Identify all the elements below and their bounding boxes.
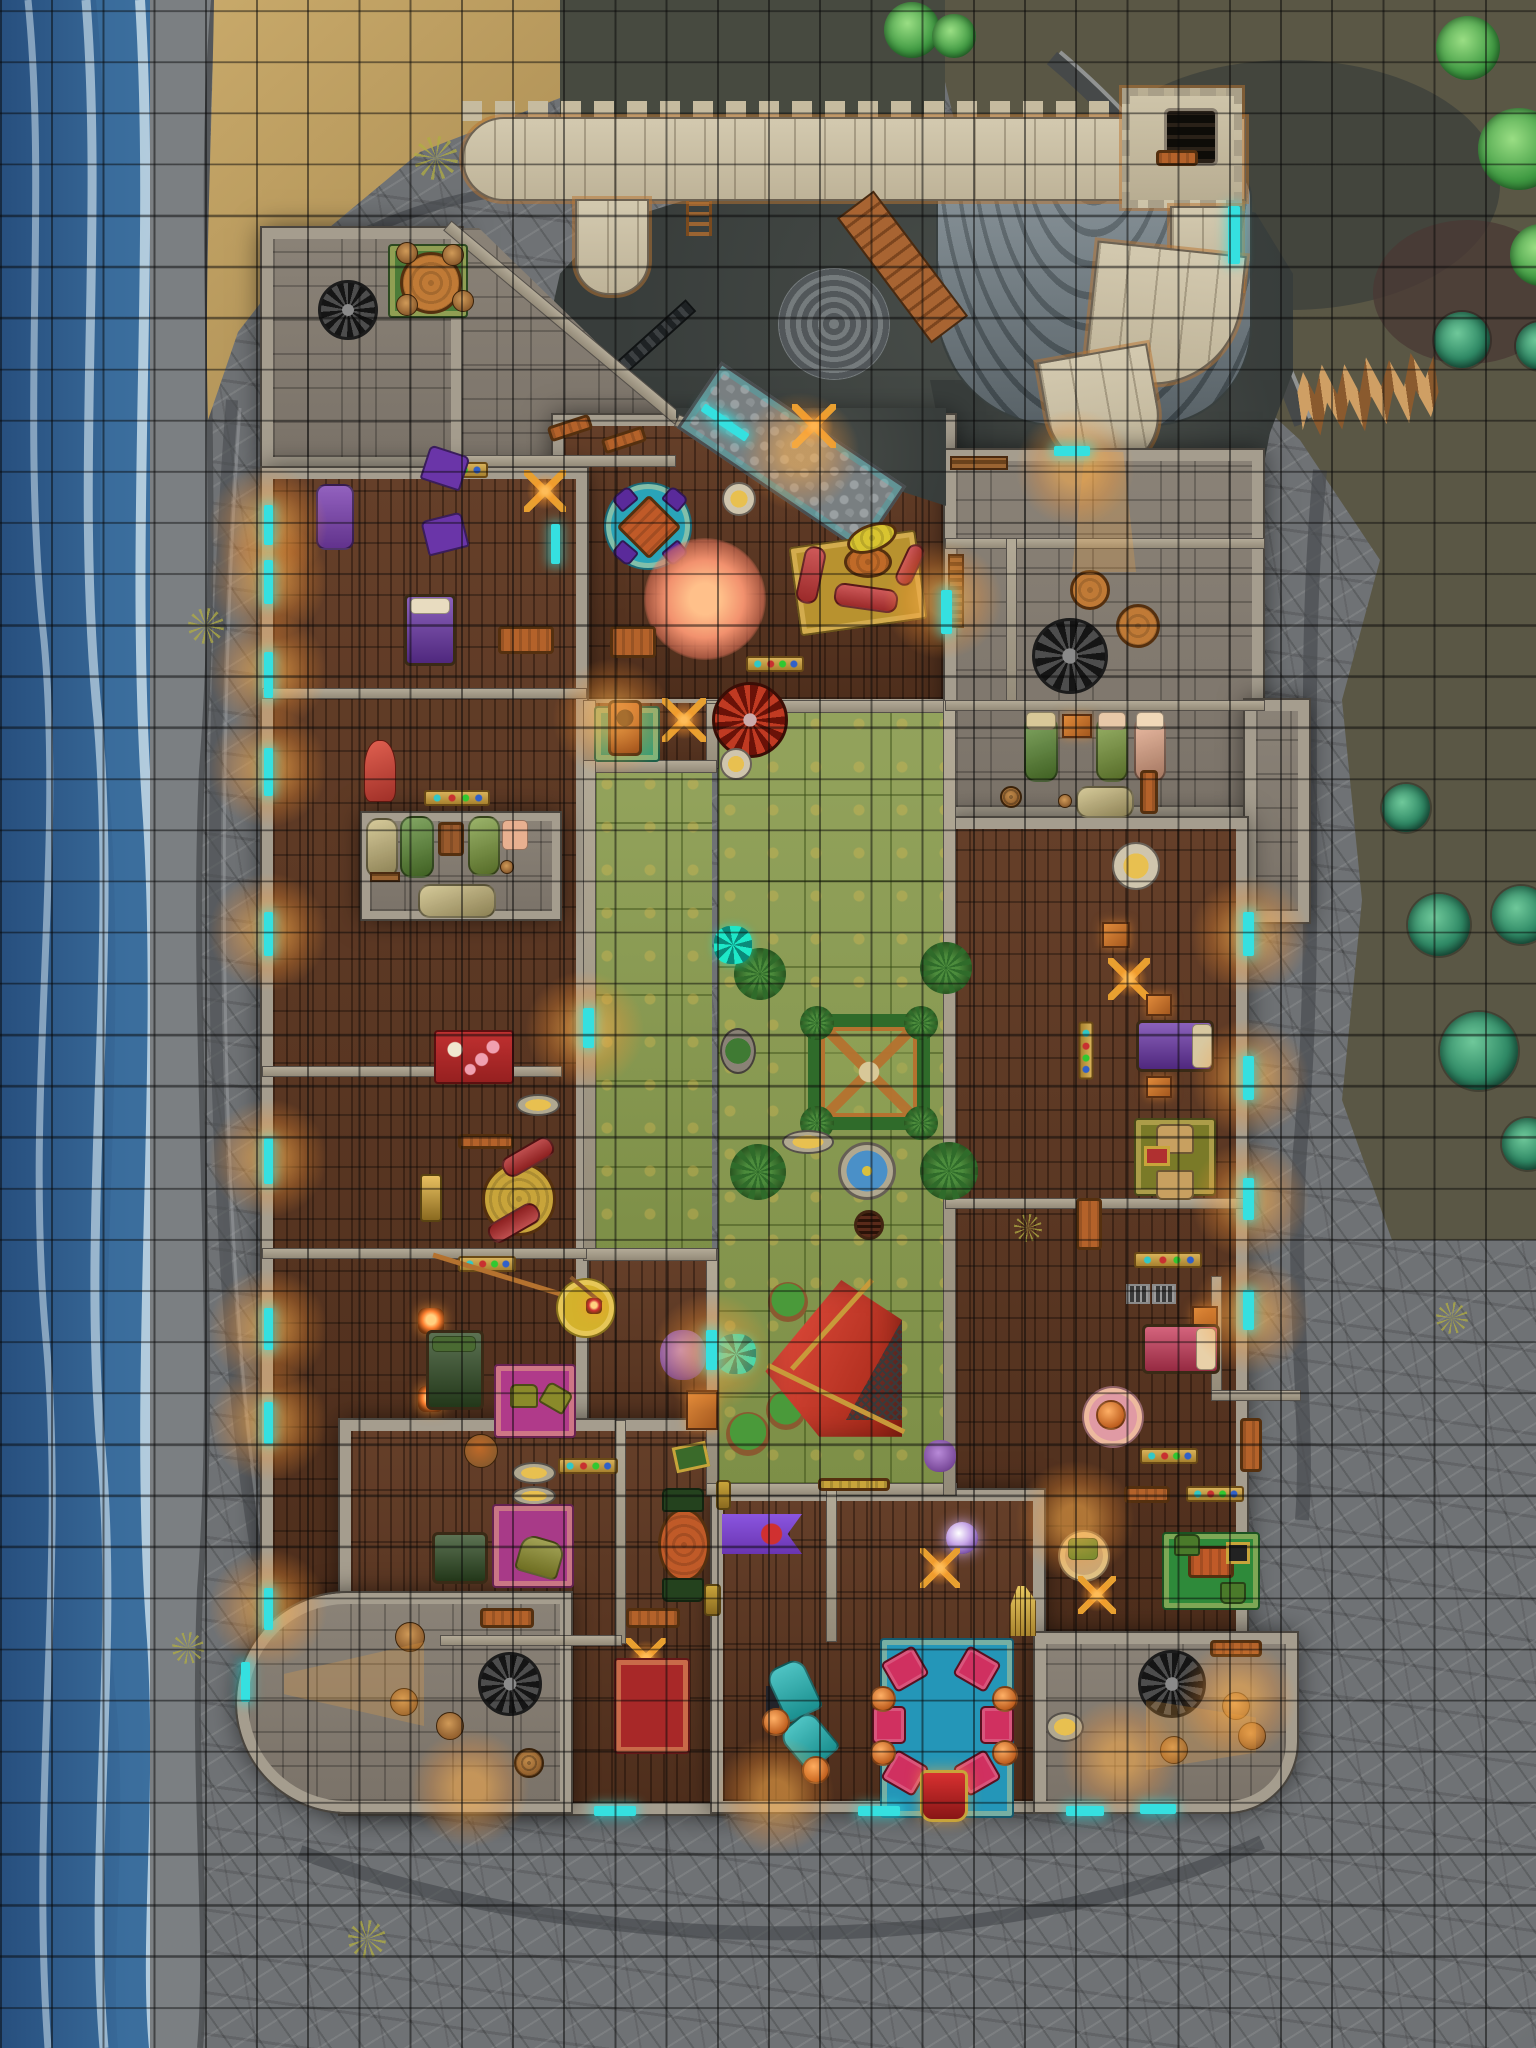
tree [1382, 784, 1430, 832]
grass [1014, 1214, 1042, 1242]
tree [1492, 886, 1536, 944]
treeb [1436, 16, 1500, 80]
grass [414, 136, 458, 180]
tree [1434, 312, 1490, 368]
tree [1516, 322, 1536, 370]
vegetation [0, 0, 1536, 2048]
treeb [1478, 108, 1536, 190]
battle-map: fantasy-battle-map [0, 0, 1536, 2048]
grass [172, 1632, 204, 1664]
treeb [932, 14, 976, 58]
grass [1436, 1302, 1468, 1334]
grass [188, 608, 224, 644]
grass [348, 1920, 386, 1958]
tree [1440, 1012, 1518, 1090]
tree [1502, 1118, 1536, 1170]
tree [1408, 894, 1470, 956]
treeb [1510, 224, 1536, 286]
